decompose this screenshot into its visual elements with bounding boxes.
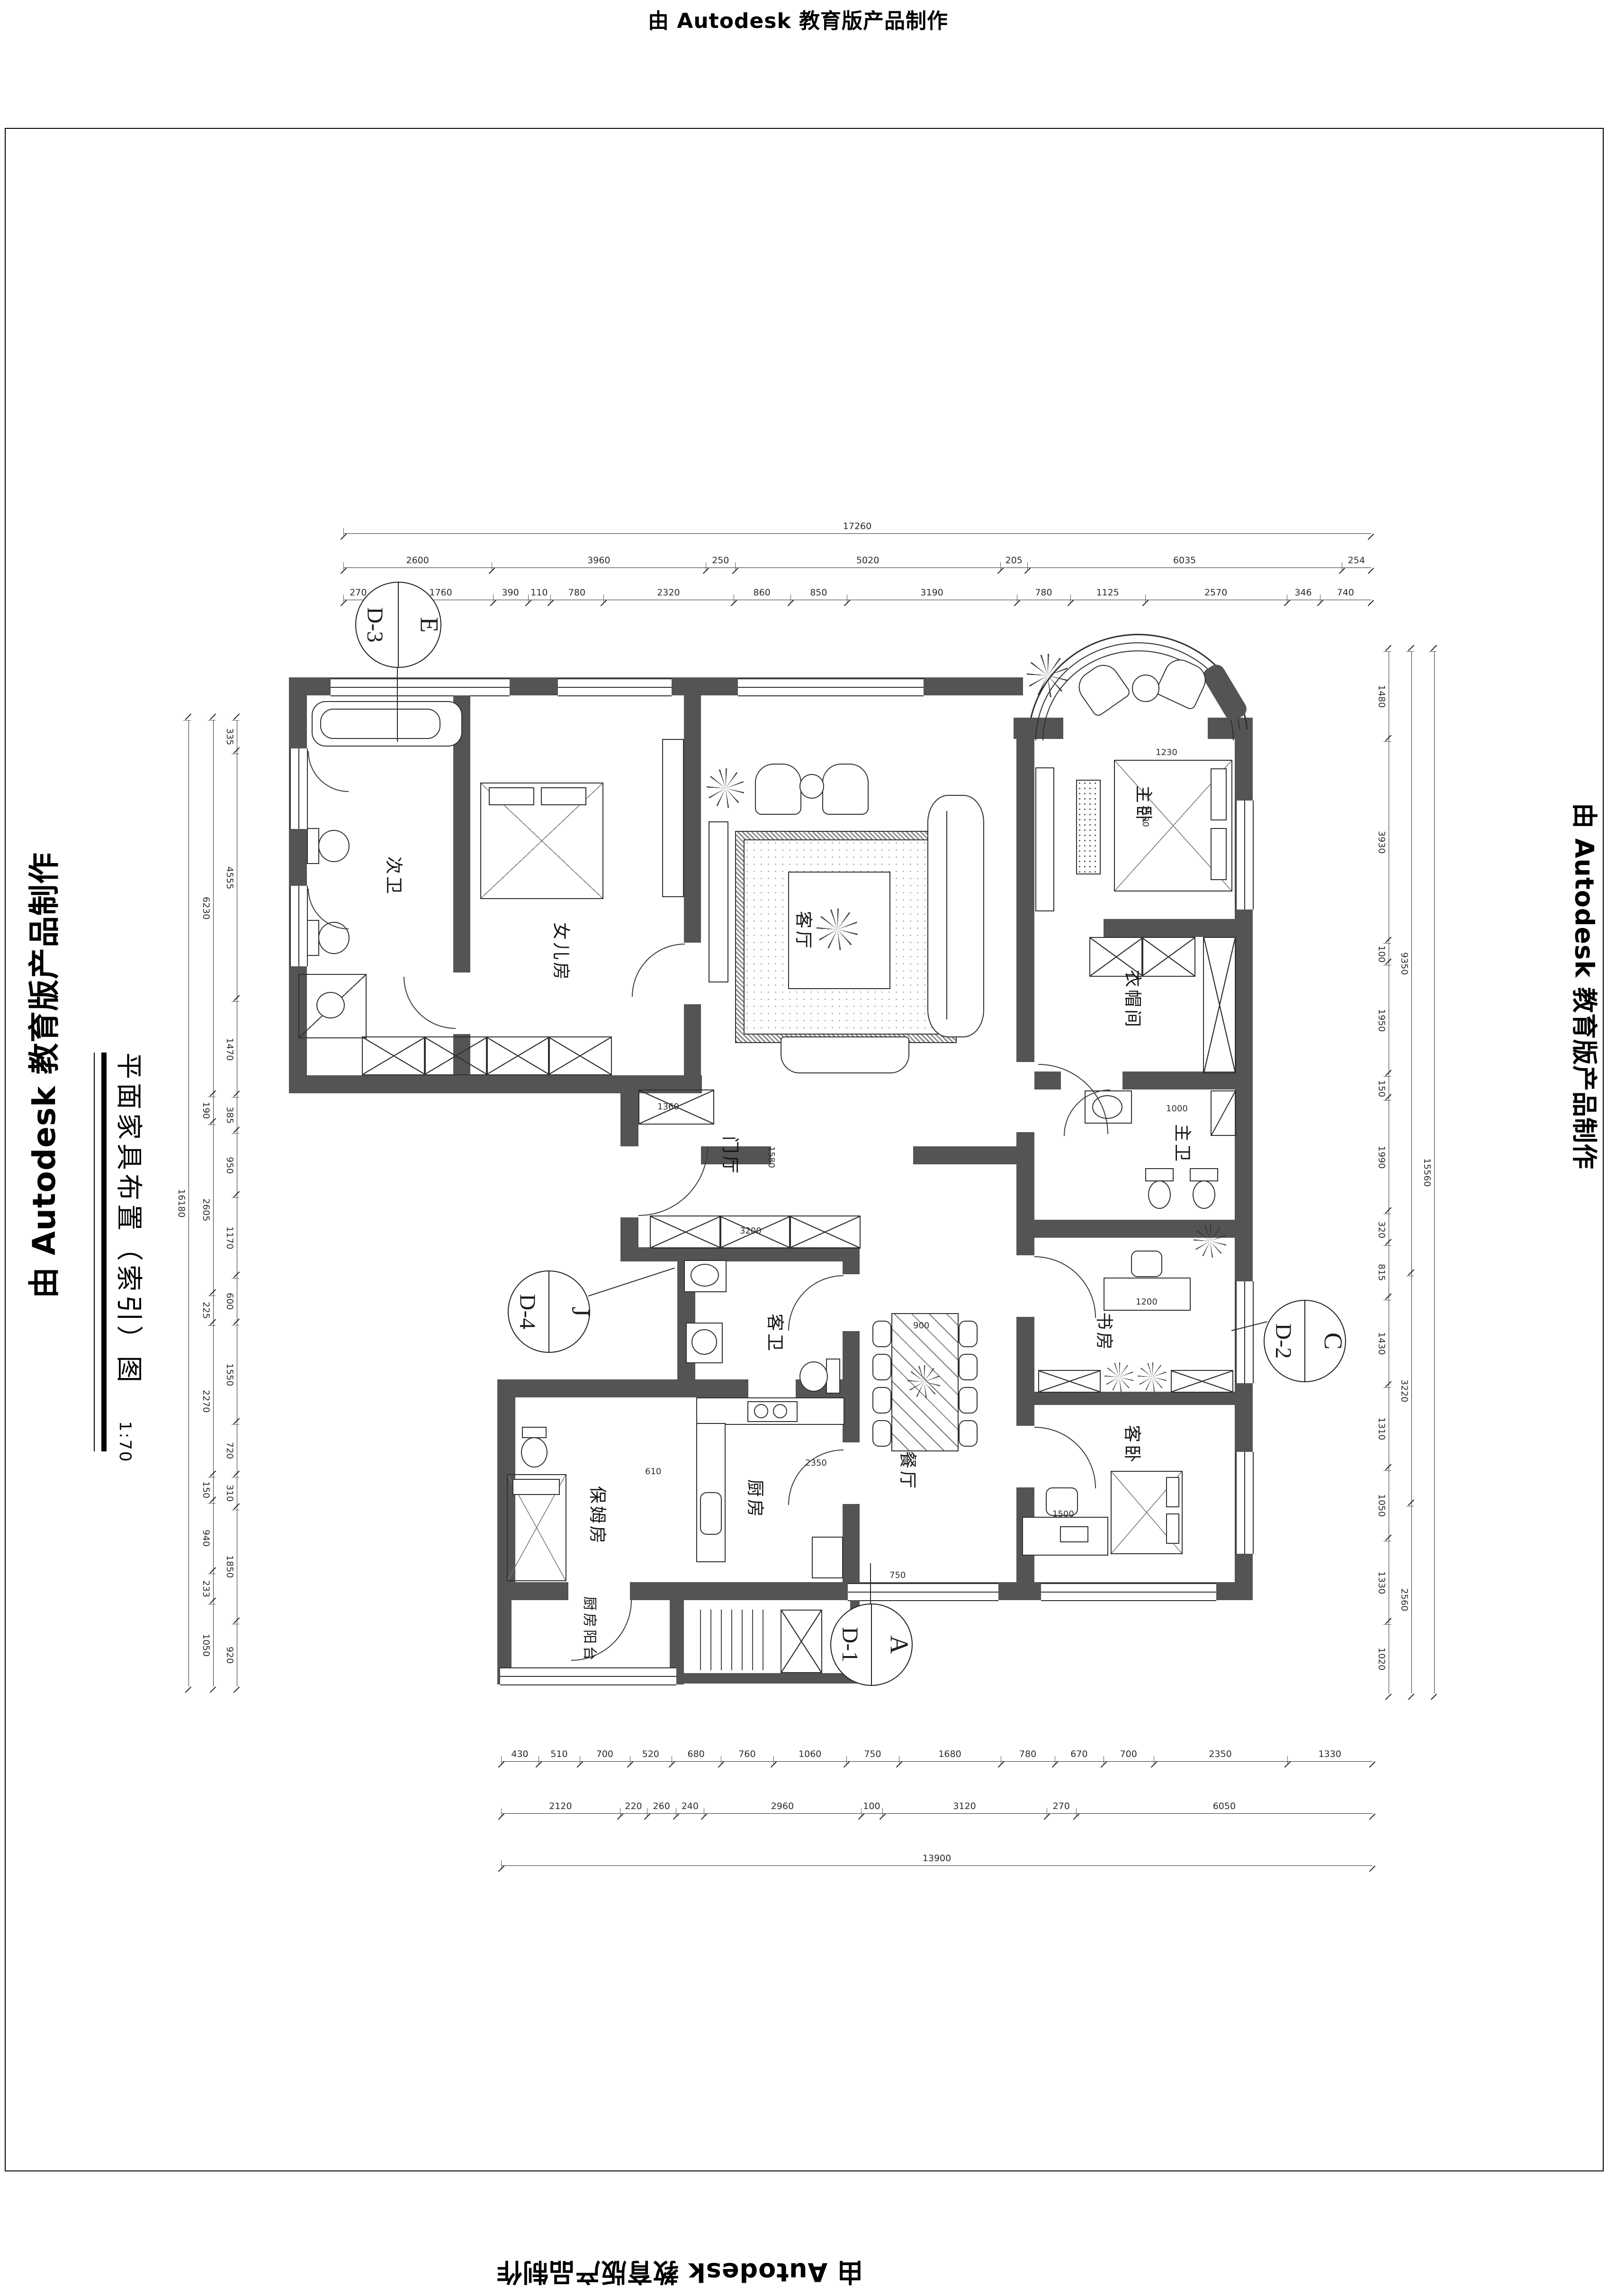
dim-segment: 3120 <box>882 1799 1046 1813</box>
shower-drain <box>316 992 345 1018</box>
room-label-kewo: 客卧 <box>1121 1425 1147 1465</box>
idim-hall: 1580 <box>766 1146 776 1168</box>
dim-value: 510 <box>550 1749 567 1759</box>
dim-value: 1680 <box>938 1749 961 1759</box>
dim-value: 520 <box>642 1749 659 1759</box>
wall-cloak-bath-divider-b <box>1122 1071 1235 1089</box>
dim-segment: 1050 <box>1374 1470 1389 1541</box>
dim-segment: 780 <box>1001 1747 1055 1761</box>
dim-value: 1050 <box>201 1634 211 1657</box>
dim-value: 680 <box>688 1749 705 1759</box>
marker-e-d3[interactable]: E D-3 <box>355 582 441 668</box>
cloak-wardrobe-2 <box>1141 937 1195 977</box>
dim-value: 16180 <box>176 1189 187 1217</box>
marker-c-d2[interactable]: C D-2 <box>1264 1300 1346 1382</box>
dining-chair-l2 <box>872 1354 891 1380</box>
dim-segment: 254 <box>1342 553 1371 567</box>
dim-segment: 1950 <box>1374 965 1389 1077</box>
dim-value: 270 <box>350 587 367 598</box>
wall-foyer-bottom <box>620 1247 860 1261</box>
window-bath-left-1 <box>290 748 308 829</box>
guestbath-toilet-bowl <box>799 1361 828 1392</box>
dim-segment: 860 <box>734 585 790 600</box>
dim-segment: 1430 <box>1374 1300 1389 1388</box>
dim-value: 600 <box>224 1293 235 1310</box>
dim-segment: 13900 <box>501 1851 1373 1865</box>
dim-value: 385 <box>224 1107 235 1124</box>
guestbath-toilet-tank <box>826 1359 840 1394</box>
dim-segment: 2960 <box>704 1799 861 1813</box>
dim-segment: 680 <box>672 1747 721 1761</box>
marker-a-d1[interactable]: A D-1 <box>830 1603 913 1686</box>
dim-value: 1990 <box>1376 1146 1387 1169</box>
dim-segment: 520 <box>630 1747 672 1761</box>
idim-desk: 1200 <box>1136 1297 1158 1307</box>
daughter-window-seat <box>662 739 684 897</box>
dim-segment: 250 <box>706 553 735 567</box>
guest-pillow-1 <box>1166 1477 1179 1507</box>
toilet-bowl-1 <box>318 830 350 862</box>
dim-segment: 100 <box>1374 943 1389 965</box>
dim-value: 2560 <box>1399 1588 1409 1611</box>
window-balcony-bottom <box>500 1667 676 1685</box>
room-label-keting: 客厅 <box>792 911 818 951</box>
idim-pc-desk: 1500 <box>1052 1509 1074 1519</box>
wall-nanny-balcony-b <box>630 1582 684 1600</box>
window-living-top <box>738 678 924 696</box>
dim-segment: 205 <box>1000 553 1027 567</box>
dim-segment: 2605 <box>199 1125 213 1296</box>
plant-coffee-table <box>817 909 858 950</box>
dim-segment: 346 <box>1287 585 1320 600</box>
dim-top-major: 2600396025050202056035254 <box>343 553 1371 568</box>
watermark-left: 由 Autodesk 教育版产品制作 <box>19 852 64 1298</box>
dim-value: 1310 <box>1376 1417 1387 1440</box>
dim-segment: 760 <box>721 1747 774 1761</box>
window-master-right <box>1236 801 1254 909</box>
room-label-zhuwei: 主卫 <box>1171 1124 1197 1164</box>
dim-segment: 3190 <box>847 585 1017 600</box>
dim-value: 225 <box>201 1302 211 1319</box>
washing-machine-drum <box>691 1329 717 1355</box>
dim-value: 3930 <box>1376 831 1387 854</box>
dim-segment: 600 <box>223 1278 237 1325</box>
dim-value: 390 <box>502 587 519 598</box>
tv-cabinet-master <box>1035 767 1054 911</box>
wall-guestbath-kitchen-right-c <box>843 1504 860 1582</box>
marker-code: D-3 <box>362 607 388 643</box>
dim-segment: 16180 <box>174 720 189 1686</box>
burner-1 <box>754 1404 768 1418</box>
dim-segment: 1310 <box>1374 1387 1389 1470</box>
dim-value: 1330 <box>1376 1571 1387 1594</box>
dim-segment: 15560 <box>1420 651 1434 1693</box>
dim-segment: 1550 <box>223 1325 237 1424</box>
dim-segment: 6050 <box>1076 1799 1373 1813</box>
dim-segment: 6035 <box>1027 553 1342 567</box>
master-bench <box>1076 780 1101 874</box>
dim-segment: 320 <box>1374 1214 1389 1245</box>
dim-value: 2960 <box>771 1801 794 1811</box>
dim-segment: 815 <box>1374 1245 1389 1299</box>
dining-chair-l3 <box>872 1387 891 1414</box>
dim-value: 1125 <box>1096 587 1119 598</box>
dim-top-minor: 2709017603901107802320860850319078011252… <box>343 585 1371 600</box>
marker-divider <box>1304 1301 1305 1381</box>
wall-elevator-bottom <box>684 1673 860 1684</box>
idim-closet: 3200 <box>740 1226 762 1236</box>
dim-left-inner: 3354555147038595011706001550720310185092… <box>223 720 237 1686</box>
guest-pillow-2 <box>1166 1513 1179 1544</box>
dim-value: 2570 <box>1204 587 1227 598</box>
dim-value: 2270 <box>201 1390 211 1413</box>
elevator-shaft <box>781 1610 822 1673</box>
dim-segment: 270 <box>1047 1799 1076 1813</box>
marker-divider <box>548 1271 549 1352</box>
dim-value: 2600 <box>406 555 429 566</box>
wall-living-bottom-b <box>913 1146 1016 1164</box>
dim-value: 3220 <box>1399 1379 1409 1402</box>
watermark-bottom: 由 Autodesk 教育版产品制作 <box>496 2256 863 2293</box>
dim-left-middle: 6230190260522522701509402331050 <box>199 720 214 1686</box>
dim-value: 780 <box>568 587 585 598</box>
bay-table <box>1132 675 1159 702</box>
dim-value: 860 <box>754 587 771 598</box>
plant-bay-left <box>1027 654 1068 697</box>
leader-d3 <box>397 666 398 742</box>
dim-value: 100 <box>1376 945 1387 963</box>
dim-segment: 1850 <box>223 1510 237 1624</box>
dim-value: 346 <box>1294 587 1311 598</box>
dim-value: 335 <box>224 728 235 745</box>
dim-segment: 1020 <box>1374 1624 1389 1693</box>
idim-bed-l: 2100 <box>1140 805 1150 827</box>
dim-segment: 780 <box>1017 585 1070 600</box>
marker-divider <box>398 583 399 667</box>
window-bath-left-2 <box>290 886 308 966</box>
dim-value: 760 <box>738 1749 755 1759</box>
dim-value: 254 <box>1348 555 1365 566</box>
dim-segment: 700 <box>580 1747 630 1761</box>
dining-chair-l4 <box>872 1420 891 1447</box>
master-pillow-1 <box>1211 768 1227 820</box>
dim-segment: 110 <box>528 585 550 600</box>
study-bookcase-2 <box>1171 1370 1233 1393</box>
side-table <box>799 774 824 799</box>
watermark-top: 由 Autodesk 教育版产品制作 <box>648 4 948 34</box>
dim-segment: 2570 <box>1145 585 1287 600</box>
dim-segment: 430 <box>501 1747 539 1761</box>
dim-segment: 3220 <box>1397 1276 1411 1506</box>
dim-segment: 1470 <box>223 1001 237 1097</box>
wall-guestbath-kitchen-right-a <box>843 1247 860 1274</box>
toilet-tank-2 <box>307 920 319 956</box>
dim-segment: 2120 <box>501 1799 620 1813</box>
dim-value: 1550 <box>224 1363 235 1386</box>
title-text: 平面家具布置（索引）图 <box>113 1053 144 1386</box>
dim-segment: 220 <box>620 1799 647 1813</box>
dim-segment: 1125 <box>1070 585 1145 600</box>
dim-segment: 260 <box>647 1799 676 1813</box>
dim-segment: 5020 <box>735 553 1000 567</box>
dim-value: 270 <box>1053 1801 1070 1811</box>
window-daughter-top <box>558 678 672 696</box>
master-toilet-tank-1 <box>1145 1168 1174 1181</box>
wall-foyer-left-b <box>620 1217 638 1247</box>
dining-chair-r2 <box>959 1354 978 1380</box>
dim-value: 670 <box>1070 1749 1087 1759</box>
dim-value: 740 <box>1337 587 1354 598</box>
dim-value: 320 <box>1376 1221 1387 1238</box>
dim-value: 3960 <box>587 555 610 566</box>
dim-segment: 335 <box>223 720 237 754</box>
dim-value: 9350 <box>1399 952 1409 975</box>
dim-segment: 720 <box>223 1424 237 1477</box>
daughter-wardrobe-1 <box>362 1036 426 1075</box>
drawing-title: 平面家具布置（索引）图 1:70 <box>112 1053 150 1463</box>
dim-segment: 3960 <box>492 553 706 567</box>
plant-corridor <box>1194 1225 1227 1258</box>
dim-segment: 3930 <box>1374 741 1389 943</box>
dim-value: 1480 <box>1376 685 1387 708</box>
hall-closet-3 <box>789 1216 861 1249</box>
nanny-pillow <box>512 1479 560 1495</box>
title-underline-thin <box>94 1053 95 1451</box>
dim-value: 780 <box>1019 1749 1036 1759</box>
daughter-wardrobe-3 <box>486 1036 550 1075</box>
dining-chair-l1 <box>872 1321 891 1347</box>
dim-value: 780 <box>1035 587 1052 598</box>
dim-segment: 2320 <box>603 585 734 600</box>
plant-living-left <box>707 768 745 808</box>
dim-value: 815 <box>1376 1264 1387 1281</box>
sofa-seat-line <box>946 811 947 1019</box>
marker-j-d4[interactable]: J D-4 <box>508 1270 590 1353</box>
dim-segment: 4555 <box>223 754 237 1001</box>
dim-value: 3120 <box>953 1801 976 1811</box>
dim-value: 17260 <box>843 521 871 531</box>
idim-door: 750 <box>889 1570 906 1580</box>
dim-segment: 1330 <box>1287 1747 1373 1761</box>
title-underline-thick <box>101 1053 107 1451</box>
dim-value: 1050 <box>1376 1494 1387 1517</box>
dim-value: 2350 <box>1209 1749 1231 1759</box>
dim-value: 2320 <box>657 587 680 598</box>
master-pillow-2 <box>1211 828 1227 880</box>
marker-code: D-1 <box>837 1627 863 1663</box>
dim-value: 110 <box>530 587 548 598</box>
marker-letter: A <box>885 1636 914 1654</box>
dim-value: 750 <box>864 1749 881 1759</box>
dim-segment: 390 <box>493 585 528 600</box>
dining-chair-r3 <box>959 1387 978 1414</box>
dim-value: 700 <box>1120 1749 1137 1759</box>
dim-value: 150 <box>1376 1080 1387 1097</box>
wall-guestbath-kitchen-right-b <box>843 1331 860 1442</box>
room-label-ciwei: 次卫 <box>383 856 408 896</box>
dim-segment: 2600 <box>343 553 492 567</box>
leader-d1 <box>870 1563 871 1605</box>
drawing-title-block: 平面家具布置（索引）图 1:70 <box>94 1053 146 1451</box>
dim-value: 4555 <box>224 866 235 889</box>
window-guest-right <box>1236 1452 1254 1554</box>
dim-value: 1760 <box>429 587 452 598</box>
room-label-baomufang: 保姆房 <box>586 1486 612 1546</box>
room-label-kewei: 客卫 <box>764 1314 790 1353</box>
wall-guestbath-kitchen-divider-a <box>694 1379 748 1397</box>
room-label-shufang: 书房 <box>1093 1312 1119 1352</box>
window-bath-top <box>331 678 510 696</box>
plant-dining-table <box>907 1365 941 1398</box>
armchair-1 <box>755 764 801 815</box>
dim-value: 310 <box>224 1485 235 1502</box>
dining-chair-r4 <box>959 1420 978 1447</box>
dim-segment: 2350 <box>1154 1747 1287 1761</box>
wall-foyer-left-a <box>620 1093 638 1146</box>
marker-letter: J <box>566 1306 596 1316</box>
dim-value: 205 <box>1005 555 1023 566</box>
idim-bed-w: 1230 <box>1156 747 1177 757</box>
idim-counter: 2350 <box>805 1458 827 1468</box>
nanny-toilet-bowl <box>521 1437 548 1468</box>
toilet-tank-1 <box>307 828 319 864</box>
bathtub-basin <box>320 709 440 739</box>
dim-value: 850 <box>810 587 827 598</box>
plant-bookcase-1 <box>1104 1362 1134 1392</box>
idim-nanny-door: 610 <box>645 1467 661 1477</box>
dim-segment: 310 <box>223 1477 237 1510</box>
hall-closet-1 <box>650 1216 721 1249</box>
dim-segment: 240 <box>676 1799 704 1813</box>
marker-divider <box>871 1604 872 1685</box>
dim-value: 2605 <box>201 1198 211 1221</box>
dim-value: 100 <box>863 1801 880 1811</box>
dim-value: 1950 <box>1376 1009 1387 1032</box>
dim-value: 1020 <box>1376 1648 1387 1670</box>
stairs <box>700 1610 771 1670</box>
dim-segment: 510 <box>539 1747 580 1761</box>
dim-segment: 700 <box>1104 1747 1154 1761</box>
dim-bottom-minor: 4305107005206807601060750168078067070023… <box>501 1747 1373 1762</box>
wall-nanny-balcony-a <box>497 1582 568 1600</box>
dim-segment: 940 <box>199 1503 213 1574</box>
nanny-toilet-tank <box>522 1427 547 1438</box>
dim-segment: 1170 <box>223 1198 237 1278</box>
dim-segment: 233 <box>199 1574 213 1604</box>
dim-value: 430 <box>511 1749 528 1759</box>
title-scale: 1:70 <box>116 1421 135 1463</box>
dim-segment: 17260 <box>343 519 1371 533</box>
console-table <box>781 1036 909 1073</box>
master-toilet-tank-2 <box>1190 1168 1218 1181</box>
marker-code: D-4 <box>514 1294 540 1330</box>
armchair-2 <box>822 764 869 815</box>
master-toilet-bowl-2 <box>1193 1180 1215 1209</box>
dim-value: 920 <box>224 1647 235 1664</box>
dim-segment: 850 <box>790 585 847 600</box>
dim-segment: 150 <box>199 1477 213 1503</box>
dim-segment: 150 <box>1374 1076 1389 1100</box>
kitchen-sink <box>700 1492 722 1535</box>
dim-segment: 1060 <box>773 1747 846 1761</box>
wall-daughter-right-b <box>684 1004 701 1075</box>
dim-segment: 670 <box>1055 1747 1104 1761</box>
dim-segment: 225 <box>199 1296 213 1325</box>
dim-value: 233 <box>201 1580 211 1597</box>
burner-2 <box>773 1404 787 1418</box>
dim-value: 950 <box>224 1157 235 1174</box>
marker-code: D-2 <box>1270 1324 1296 1359</box>
dim-value: 1060 <box>799 1749 821 1759</box>
guestbath-sink <box>691 1264 719 1287</box>
dim-segment: 780 <box>550 585 603 600</box>
dim-segment: 1680 <box>899 1747 1001 1761</box>
dim-top-overall: 17260 <box>343 519 1371 534</box>
dim-segment: 1480 <box>1374 651 1389 741</box>
idim-table: 900 <box>913 1321 929 1331</box>
wall-daughter-right-a <box>684 695 701 943</box>
room-label-yimaojian: 衣帽间 <box>1122 970 1147 1029</box>
marker-letter: E <box>414 617 444 633</box>
room-label-chufang: 厨房 <box>744 1479 770 1519</box>
dim-value: 3190 <box>920 587 943 598</box>
dim-value: 940 <box>201 1530 211 1547</box>
sofa <box>927 795 984 1037</box>
plant-bookcase-2 <box>1138 1362 1167 1392</box>
dim-bottom-major: 2120220260240296010031202706050 <box>501 1799 1373 1814</box>
marker-letter: C <box>1319 1333 1348 1350</box>
dim-segment: 2270 <box>199 1325 213 1477</box>
dim-segment: 385 <box>223 1097 237 1133</box>
dim-right-inner: 1480393010019501501990320815143013101050… <box>1374 651 1389 1693</box>
daughter-pillow-1 <box>489 787 534 805</box>
wall-suite-left-b <box>1016 1132 1034 1255</box>
dim-value: 700 <box>596 1749 613 1759</box>
dim-segment: 740 <box>1320 585 1371 600</box>
dim-value: 1430 <box>1376 1332 1387 1355</box>
cloak-wardrobe-3 <box>1203 937 1236 1073</box>
dim-value: 720 <box>224 1442 235 1459</box>
dim-segment: 2560 <box>1397 1506 1411 1693</box>
room-label-yangtai: 厨房阳台 <box>581 1596 602 1663</box>
wall-suite-left-a <box>1016 718 1034 1062</box>
master-shower <box>1211 1090 1236 1136</box>
wall-nanny-top <box>497 1379 695 1397</box>
dim-value: 6230 <box>201 897 211 919</box>
daughter-pillow-2 <box>541 787 586 805</box>
dim-value: 6050 <box>1213 1801 1236 1811</box>
dim-bottom-overall: 13900 <box>501 1851 1373 1866</box>
dim-segment: 920 <box>223 1624 237 1686</box>
dim-segment: 1990 <box>1374 1100 1389 1214</box>
wall-master-cloak-divider <box>1104 919 1235 937</box>
watermark-right: 由 Autodesk 教育版产品制作 <box>1568 803 1606 1170</box>
room-label-nverfang: 女儿房 <box>550 922 575 982</box>
idim-shoe: 1360 <box>657 1102 679 1112</box>
room-label-menting: 门厅 <box>719 1136 745 1176</box>
dim-value: 13900 <box>923 1853 951 1864</box>
study-chair <box>1131 1251 1162 1277</box>
dim-right-middle: 935032202560 <box>1397 651 1412 1693</box>
dim-segment: 1050 <box>199 1604 213 1686</box>
dim-value: 1330 <box>1319 1749 1341 1759</box>
dim-value: 150 <box>201 1481 211 1498</box>
dim-left-outer: 16180 <box>174 720 189 1686</box>
dim-segment: 950 <box>223 1133 237 1197</box>
dim-value: 5020 <box>856 555 879 566</box>
dim-right-outer: 15560 <box>1420 651 1435 1693</box>
daughter-wardrobe-4 <box>548 1036 612 1075</box>
